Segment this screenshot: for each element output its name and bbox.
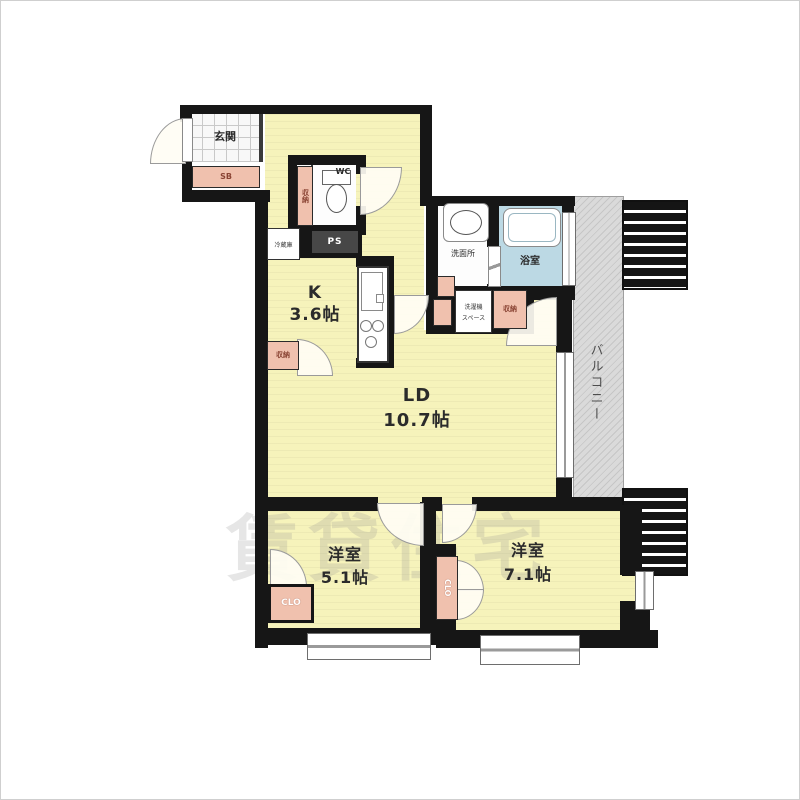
bedroom2-type-label: 洋室 — [488, 541, 568, 561]
bedroom2-closet: CLO — [436, 556, 458, 620]
bedroom2-area-label: 7.1帖 — [483, 565, 573, 585]
pipe-space-label: PS — [327, 237, 342, 247]
bedroom1-window — [307, 633, 431, 660]
washroom-niche-top — [437, 276, 455, 297]
washroom-storage: 収納 — [493, 290, 527, 329]
bathtub-inner — [508, 213, 556, 242]
bedroom1-closet-label: CLO — [281, 599, 301, 608]
bedroom1-area-label: 5.1帖 — [300, 568, 390, 588]
kitchen-storage: 収納 — [267, 341, 299, 370]
bedroom1-type-label: 洋室 — [305, 545, 385, 565]
bedroom2-window — [480, 635, 580, 665]
wall — [182, 105, 430, 114]
washer-label-1: 洗濯機 — [464, 302, 482, 311]
kitchen-sink — [361, 272, 383, 311]
balcony-label: バルコニー — [582, 325, 608, 440]
wall — [288, 155, 366, 165]
living-balcony-window — [556, 352, 574, 478]
pipe-space: PS — [312, 231, 358, 253]
living-area-label: 10.7帖 — [367, 410, 467, 432]
hall-storage-label: 収納 — [302, 189, 309, 203]
bathroom-folding-door — [488, 246, 501, 287]
hall-storage: 収納 — [297, 166, 313, 226]
wall — [255, 497, 378, 511]
kitchen-area-label: 3.6帖 — [275, 305, 355, 325]
entrance-door-leaf — [182, 118, 193, 162]
toilet-bowl — [326, 184, 347, 213]
wall — [472, 497, 622, 511]
wall — [556, 296, 572, 354]
washroom-niche-bottom — [433, 299, 452, 326]
washer-space: 洗濯機 スペース — [455, 290, 492, 333]
stove-burner-3 — [365, 336, 377, 348]
bathroom-label: 浴室 — [505, 255, 555, 269]
fridge-space: 冷蔵庫 — [267, 228, 300, 260]
entrance-door-arc — [150, 118, 186, 164]
living-type-label: LD — [377, 385, 457, 407]
entrance-step-line — [259, 114, 263, 162]
entrance-label: 玄関 — [196, 128, 254, 144]
wall — [255, 198, 268, 648]
kitchen-faucet — [376, 294, 384, 303]
wall — [620, 505, 642, 575]
washroom-storage-label: 収納 — [503, 306, 517, 313]
bedroom1-closet: CLO — [268, 584, 314, 623]
floor-plan: 賃貸住宅 バルコニー 玄関 SB 収納 WC 冷蔵庫 PS K 3.6帖 収納 — [0, 0, 800, 800]
fridge-label: 冷蔵庫 — [274, 240, 292, 249]
shoe-box: SB — [192, 166, 260, 188]
wall — [288, 160, 297, 235]
wall — [420, 105, 432, 206]
washroom-label: 洗面所 — [441, 248, 485, 260]
bathroom-window — [562, 212, 576, 286]
stove-burner-1 — [360, 320, 372, 332]
hatched-block-top — [622, 200, 688, 290]
kitchen-type-label: K — [285, 283, 345, 303]
shoe-box-label: SB — [220, 173, 232, 181]
toilet-label: WC — [330, 166, 356, 177]
bedroom2-side-window — [635, 571, 654, 610]
bedroom2-closet-label: CLO — [443, 579, 451, 596]
washbasin-bowl — [450, 210, 482, 235]
washer-label-2: スペース — [462, 313, 485, 322]
kitchen-storage-label: 収納 — [276, 352, 290, 359]
stove-burner-2 — [372, 320, 384, 332]
